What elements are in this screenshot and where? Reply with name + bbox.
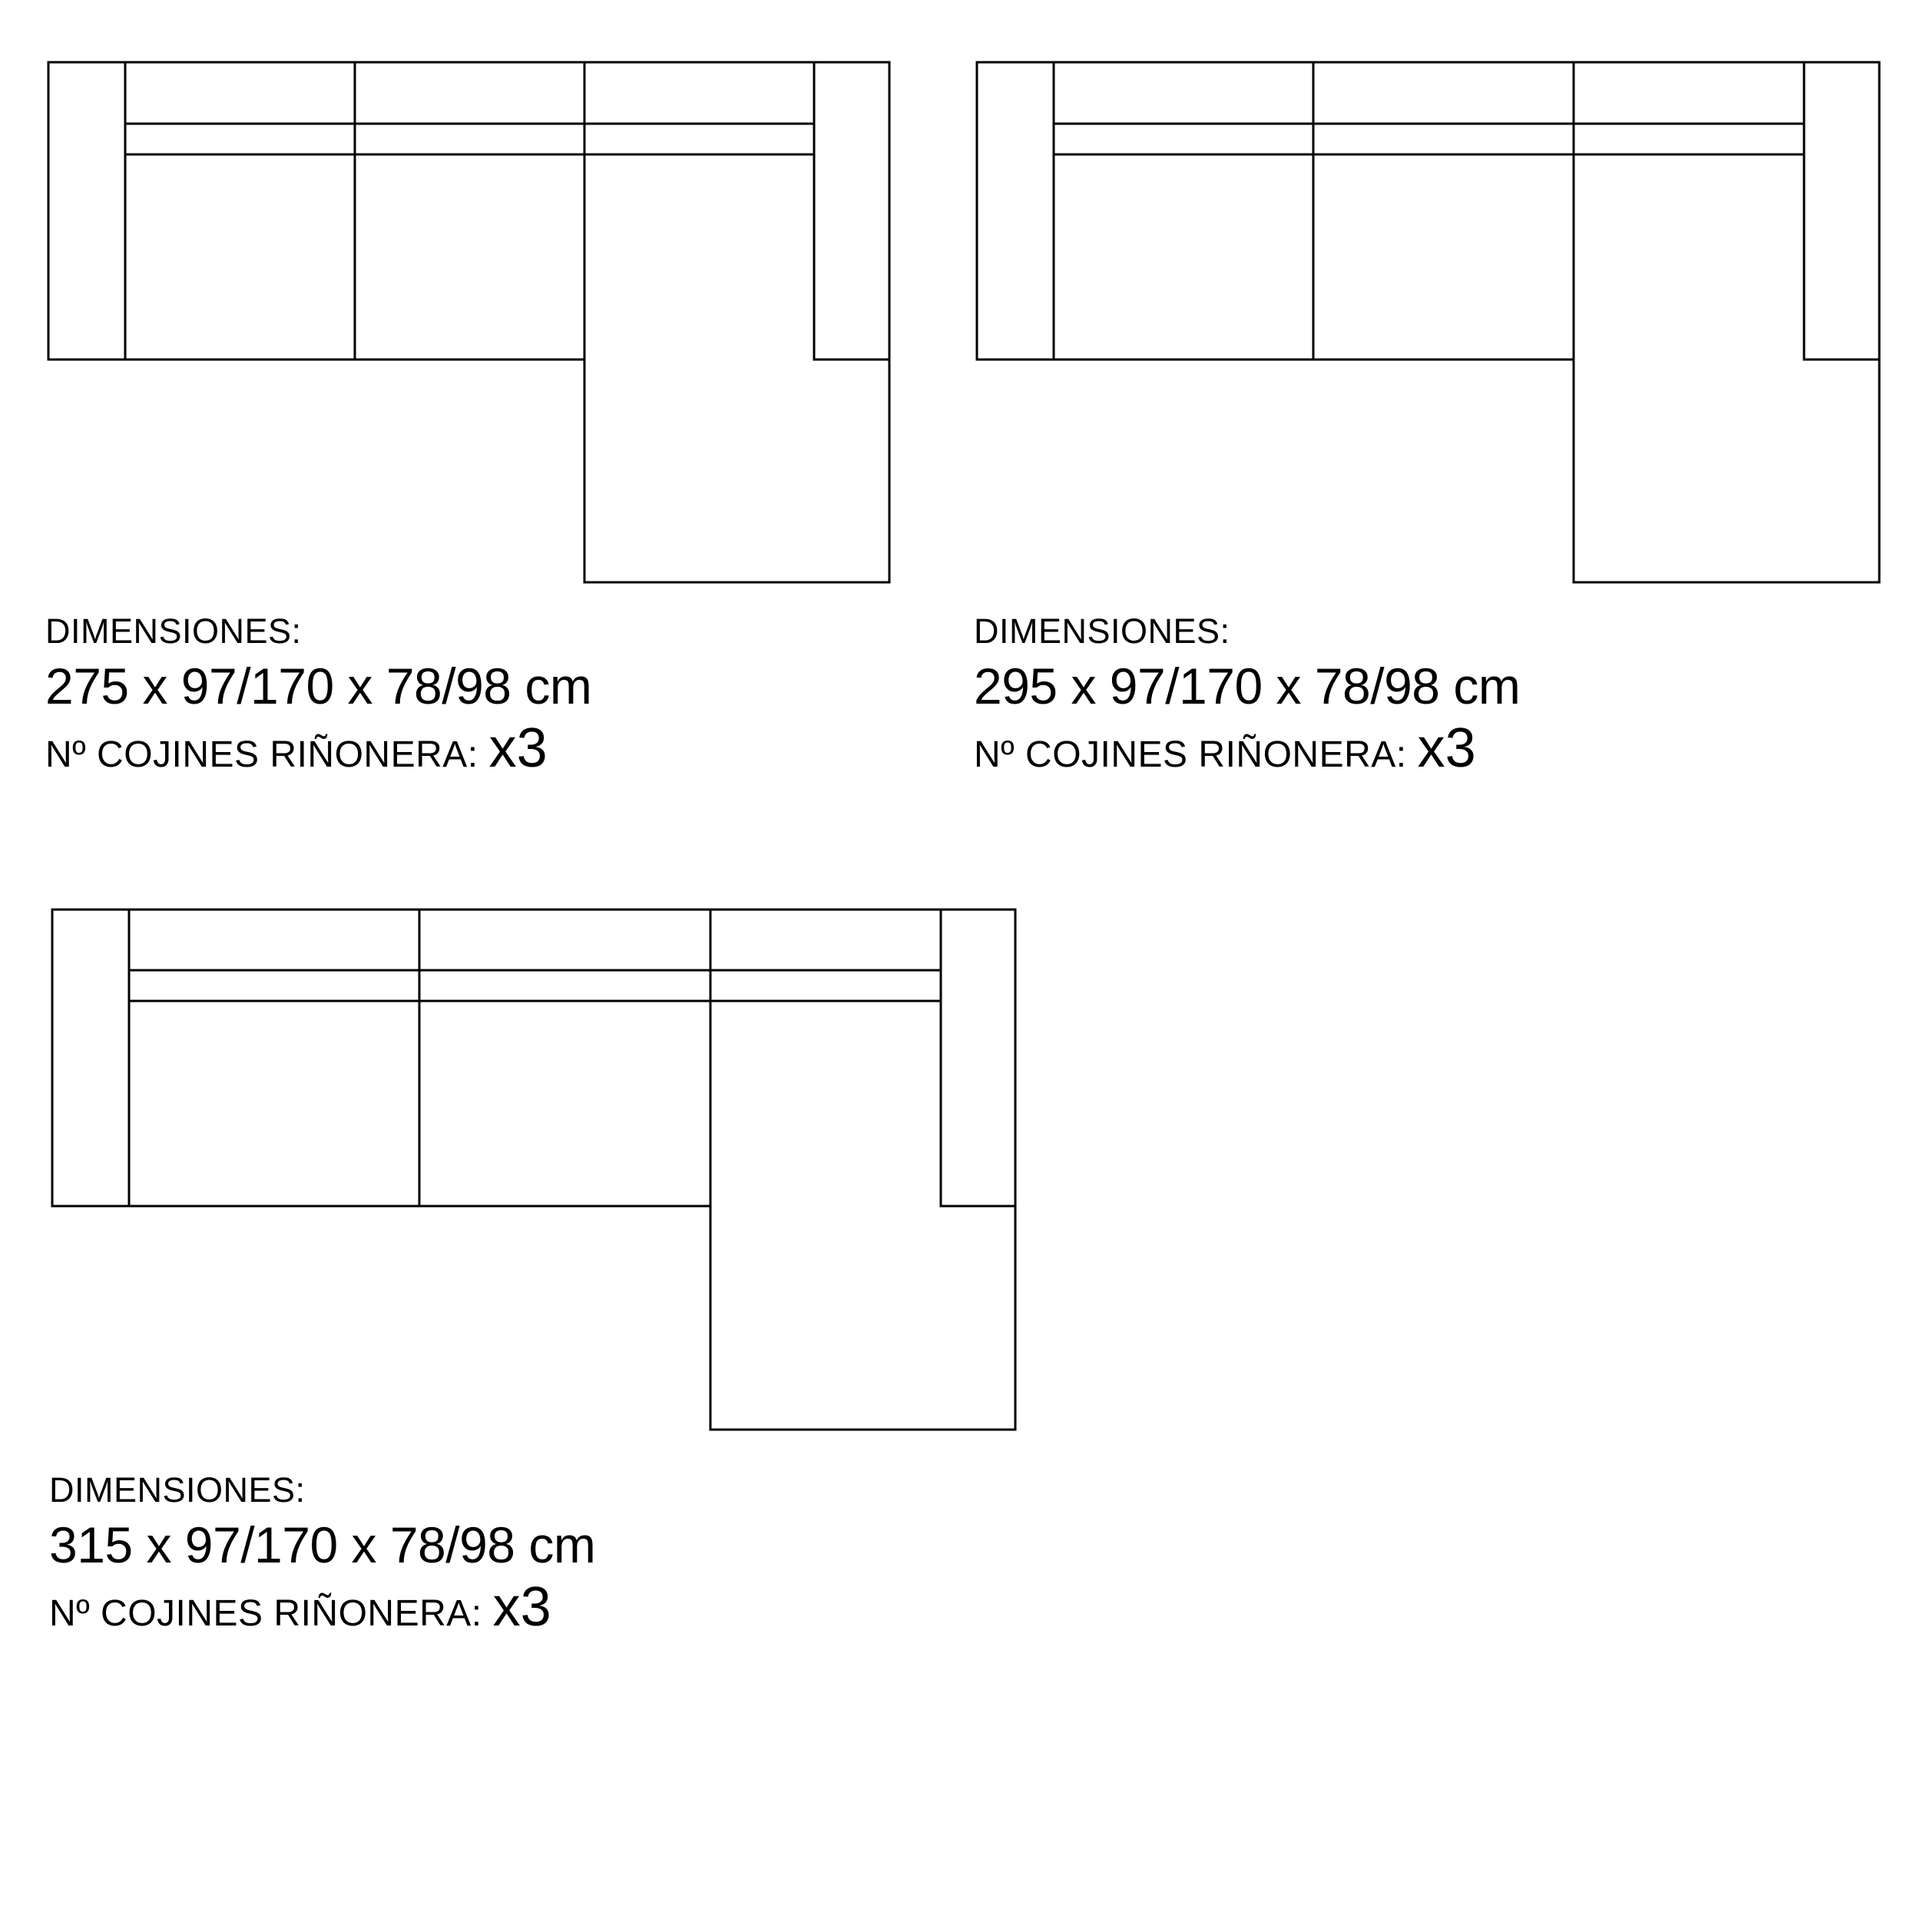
sofa-chaise-275 <box>48 62 889 582</box>
spec-block-315: DIMENSIONES: 315 x 97/170 x 78/98 cm Nº … <box>49 1473 595 1642</box>
sofa-outline-diagrams <box>0 0 1920 1932</box>
dimensions-label: DIMENSIONES: <box>49 1473 595 1507</box>
dimensions-value: 295 x 97/170 x 78/98 cm <box>974 661 1520 711</box>
sofa-chaise-295 <box>977 62 1879 582</box>
dimensions-label: DIMENSIONES: <box>45 614 591 648</box>
cushions-count: x3 <box>493 1576 551 1638</box>
cushions-line: Nº COJINES RIÑONERA:x3 <box>49 1579 595 1642</box>
cushions-label: Nº COJINES RIÑONERA: <box>45 734 478 775</box>
cushions-label: Nº COJINES RIÑONERA: <box>974 734 1407 775</box>
spec-block-275: DIMENSIONES: 275 x 97/170 x 78/98 cm Nº … <box>45 614 591 783</box>
cushions-count: x3 <box>1418 717 1476 779</box>
dimensions-label: DIMENSIONES: <box>974 614 1520 648</box>
sofa-chaise-315 <box>52 910 1015 1430</box>
spec-block-295: DIMENSIONES: 295 x 97/170 x 78/98 cm Nº … <box>974 614 1520 783</box>
cushions-line: Nº COJINES RIÑONERA:x3 <box>974 721 1520 783</box>
cushions-line: Nº COJINES RIÑONERA:x3 <box>45 721 591 783</box>
cushions-label: Nº COJINES RIÑONERA: <box>49 1593 482 1634</box>
sofa-spec-sheet: DIMENSIONES: 275 x 97/170 x 78/98 cm Nº … <box>0 0 1920 1932</box>
dimensions-value: 275 x 97/170 x 78/98 cm <box>45 661 591 711</box>
dimensions-value: 315 x 97/170 x 78/98 cm <box>49 1519 595 1570</box>
cushions-count: x3 <box>489 717 548 779</box>
